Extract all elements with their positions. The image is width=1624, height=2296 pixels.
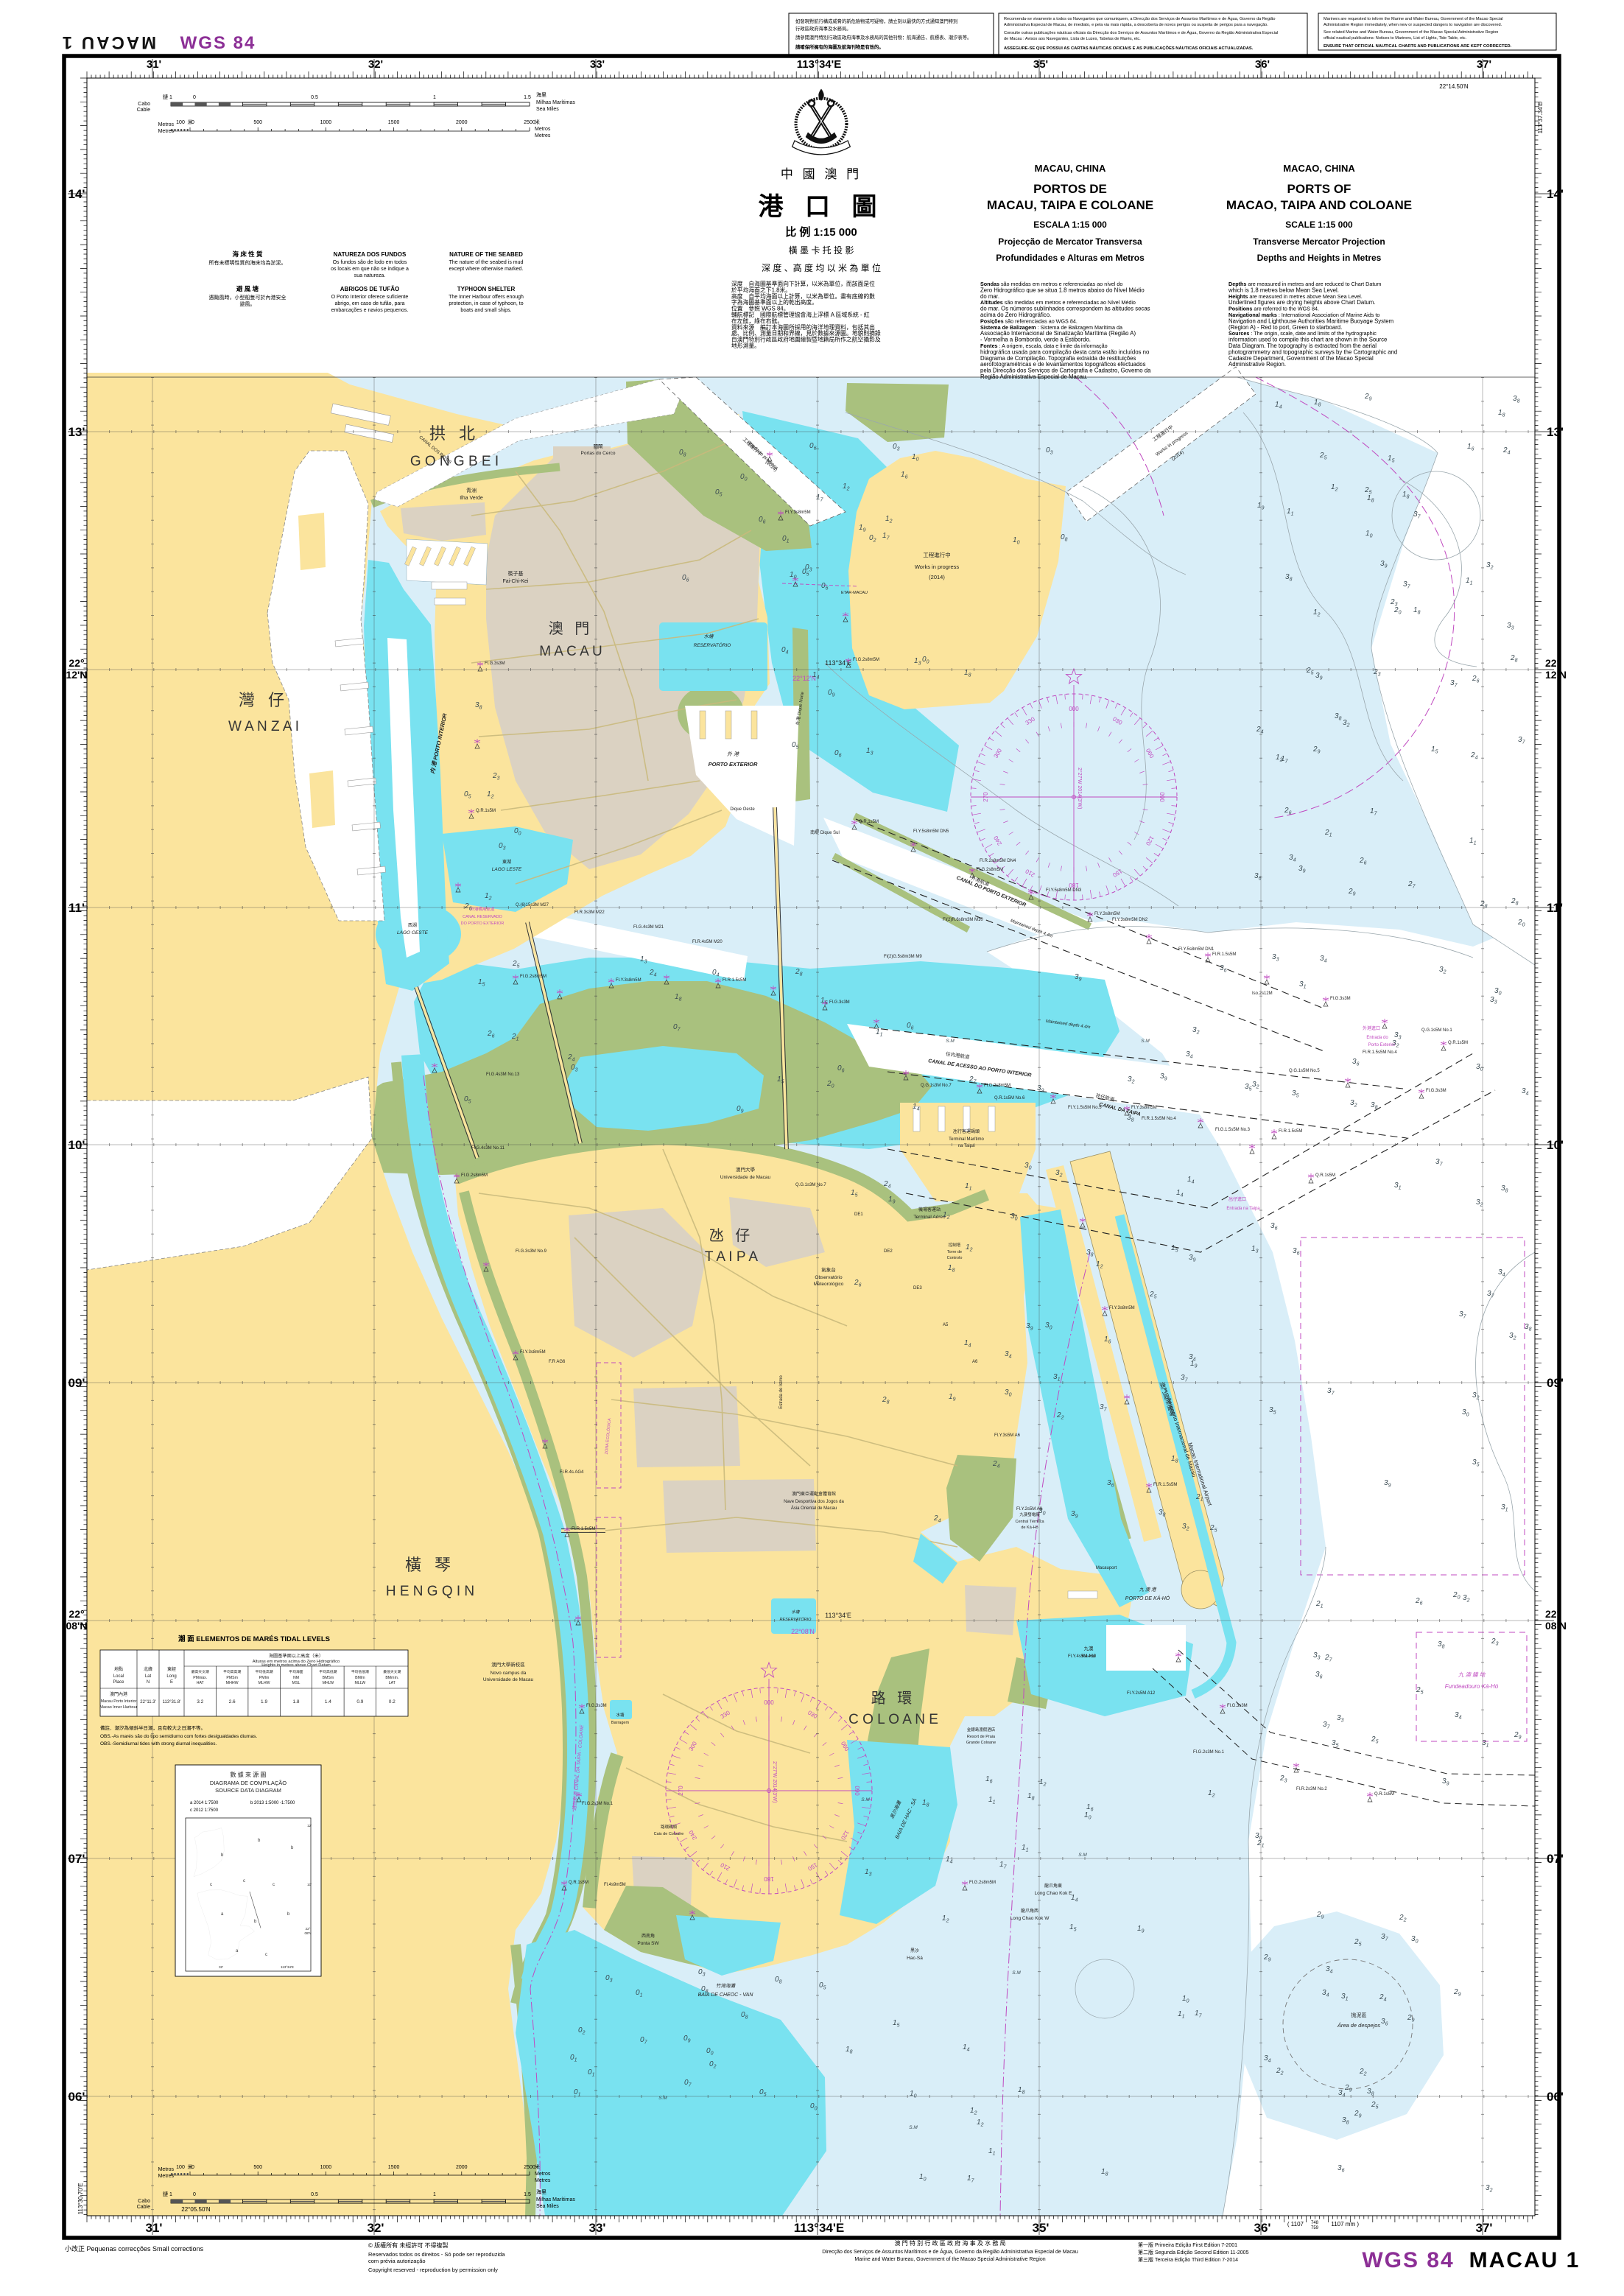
- svg-text:拱 北: 拱 北: [429, 424, 479, 443]
- svg-text:第二版 Segunda Edição Second: 第二版 Segunda Edição Second Edition 11-200…: [1138, 2249, 1249, 2255]
- svg-text:Fl.G.3s3M: Fl.G.3s3M: [829, 1000, 850, 1005]
- svg-text:遇颱風時，小型船隻可於內港安全: 遇颱風時，小型船隻可於內港安全: [209, 294, 287, 301]
- svg-text:Q.R.1s5M: Q.R.1s5M: [476, 809, 496, 813]
- svg-text:Fl.R.4s AG4: Fl.R.4s AG4: [560, 1470, 584, 1475]
- svg-text:180: 180: [1069, 882, 1079, 888]
- svg-text:except where otherwise mark: except where otherwise marked.: [449, 267, 524, 272]
- svg-text:E: E: [170, 1680, 173, 1685]
- svg-text:Universidade de Macau: Universidade de Macau: [720, 1175, 771, 1180]
- svg-text:180: 180: [764, 1875, 774, 1882]
- svg-text:09': 09': [1547, 1376, 1564, 1390]
- svg-text:Barragem: Barragem: [611, 1721, 630, 1725]
- svg-text:MACAU, TAIPA E COLOANE: MACAU, TAIPA E COLOANE: [987, 198, 1153, 212]
- svg-text:07': 07': [68, 1852, 85, 1866]
- svg-text:DE3: DE3: [913, 1286, 922, 1291]
- svg-text:Fl.G.4s3M No.13: Fl.G.4s3M No.13: [486, 1072, 520, 1077]
- svg-text:1000: 1000: [320, 120, 332, 125]
- svg-text:Fl.G.3s3M: Fl.G.3s3M: [1330, 997, 1351, 1001]
- svg-text:113°37.34'E: 113°37.34'E: [1537, 102, 1544, 134]
- svg-text:Works in progress: Works in progress: [915, 564, 960, 570]
- svg-text:Fl.G.2s3M No.1: Fl.G.2s3M No.1: [1193, 1750, 1225, 1755]
- svg-text:c: c: [243, 1879, 245, 1884]
- svg-text:RESERVATÓRIO: RESERVATÓRIO: [694, 642, 731, 648]
- svg-text:澳 門: 澳 門: [549, 620, 594, 637]
- svg-text:1.5: 1.5: [524, 2192, 531, 2197]
- svg-text:控制塔: 控制塔: [949, 1242, 961, 1248]
- svg-text:氹行客運碼頭: 氹行客運碼頭: [953, 1128, 980, 1134]
- svg-text:N: N: [147, 1680, 150, 1685]
- svg-text:Fl.G.2s8m5M: Fl.G.2s8m5M: [977, 868, 1003, 872]
- svg-text:(2014): (2014): [929, 574, 945, 580]
- svg-text:Porto Exterior: Porto Exterior: [1368, 1043, 1396, 1047]
- svg-text:HAT: HAT: [197, 1681, 205, 1685]
- svg-text:2000: 2000: [456, 120, 468, 125]
- svg-text:平均低低潮: 平均低低潮: [351, 1669, 369, 1674]
- svg-text:36': 36': [1254, 2221, 1271, 2235]
- svg-text:22°05.50'N: 22°05.50'N: [181, 2206, 211, 2213]
- svg-text:OBS.-Semidiurnal tides with st: OBS.-Semidiurnal tides with strong diurn…: [100, 1741, 217, 1746]
- svg-text:Metres: Metres: [535, 133, 551, 138]
- svg-text:35': 35': [1033, 2221, 1050, 2235]
- svg-text:MACAO, TAIPA AND COLOANE: MACAO, TAIPA AND COLOANE: [1226, 198, 1412, 212]
- svg-text:C O L O A N E: C O L O A N E: [848, 1712, 938, 1727]
- svg-text:500: 500: [253, 2165, 262, 2170]
- svg-text:北緯: 北緯: [144, 1666, 152, 1672]
- svg-text:Q.R.1s5M: Q.R.1s5M: [1374, 1792, 1394, 1797]
- svg-text:路 環: 路 環: [871, 1690, 916, 1707]
- svg-text:2.6: 2.6: [229, 1699, 236, 1705]
- svg-text:LAGO OESTE: LAGO OESTE: [397, 930, 429, 935]
- svg-text:Macauport: Macauport: [1096, 1566, 1117, 1570]
- svg-text:1.9: 1.9: [261, 1699, 267, 1705]
- svg-text:113°34'E: 113°34'E: [825, 1612, 851, 1619]
- svg-text:路環碼頭: 路環碼頭: [661, 1824, 678, 1830]
- svg-text:Fl.G.4s3M M21: Fl.G.4s3M M21: [633, 925, 664, 930]
- svg-text:最低天文潮: 最低天文潮: [383, 1669, 401, 1674]
- svg-text:LAGO LESTE: LAGO LESTE: [492, 867, 522, 872]
- svg-text:Q.R.1s5M: Q.R.1s5M: [569, 1881, 588, 1885]
- svg-text:海 床 性 質: 海 床 性 質: [232, 250, 263, 258]
- svg-text:32': 32': [368, 2221, 384, 2235]
- svg-text:海里: 海里: [536, 91, 546, 98]
- svg-text:比 例 1:15 000: 比 例 1:15 000: [785, 225, 857, 239]
- svg-text:Terminal Aéreo: Terminal Aéreo: [913, 1215, 946, 1220]
- svg-text:36': 36': [1255, 58, 1270, 71]
- svg-text:外港備用航道: 外港備用航道: [470, 906, 495, 912]
- svg-text:Torre de: Torre de: [947, 1250, 962, 1254]
- svg-text:000: 000: [1069, 706, 1079, 712]
- svg-text:DIAGRAMA DE COMPILAÇÃO: DIAGRAMA DE COMPILAÇÃO: [210, 1780, 287, 1786]
- svg-text:Fl.Y.5s8m5M DN5: Fl.Y.5s8m5M DN5: [913, 829, 949, 834]
- svg-text:270: 270: [678, 1786, 684, 1796]
- svg-text:Fl.Y.5s8m5M DN3: Fl.Y.5s8m5M DN3: [1046, 888, 1082, 893]
- svg-text:14': 14': [68, 187, 85, 201]
- svg-text:PORTO EXTERIOR: PORTO EXTERIOR: [709, 761, 758, 768]
- svg-text:Q.G.1s5M No.5: Q.G.1s5M No.5: [1289, 1069, 1320, 1073]
- svg-text:S.M: S.M: [1012, 1970, 1021, 1976]
- svg-text:Fl.R.1.5s5M: Fl.R.1.5s5M: [723, 978, 746, 983]
- svg-text:機場客運站: 機場客運站: [918, 1207, 941, 1212]
- svg-text:Fl.G.3s3M: Fl.G.3s3M: [485, 661, 505, 666]
- svg-text:BMSm: BMSm: [323, 1676, 334, 1680]
- svg-text:12': 12': [307, 1824, 312, 1828]
- svg-text:Long Chao Kok E: Long Chao Kok E: [1035, 1891, 1073, 1896]
- svg-text:九 澳 錨 地: 九 澳 錨 地: [1458, 1671, 1486, 1678]
- svg-text:地點: 地點: [114, 1666, 123, 1672]
- svg-text:黑沙: 黑沙: [910, 1948, 919, 1953]
- svg-text:Fl.R.1.5s5M: Fl.R.1.5s5M: [572, 1527, 595, 1531]
- svg-text:Portas do Cerco: Portas do Cerco: [581, 451, 616, 456]
- svg-text:1: 1: [169, 2192, 172, 2197]
- svg-text:PORTS OF: PORTS OF: [1287, 182, 1351, 196]
- svg-text:MACAU 1: MACAU 1: [60, 32, 156, 52]
- svg-text:Terminal Marítimo: Terminal Marítimo: [949, 1137, 984, 1142]
- svg-text:MLHW: MLHW: [259, 1681, 270, 1685]
- svg-text:10': 10': [307, 1883, 312, 1886]
- svg-text:Macau Porto Interior: Macau Porto Interior: [101, 1699, 137, 1704]
- svg-text:S.M: S.M: [946, 1039, 955, 1044]
- svg-text:第一版 Primeira Edição First: 第一版 Primeira Edição First Edition 7-2001: [1138, 2241, 1237, 2248]
- svg-text:1000: 1000: [320, 2165, 332, 2170]
- svg-text:boats and small ships.: boats and small ships.: [460, 308, 511, 313]
- svg-text:龍爪角東: 龍爪角東: [1044, 1883, 1062, 1889]
- svg-text:Depths and Heights in Metres: Depths and Heights in Metres: [1257, 253, 1382, 263]
- svg-text:W A N Z A I: W A N Z A I: [228, 719, 299, 734]
- svg-text:竹灣海灘: 竹灣海灘: [716, 1983, 737, 1989]
- svg-text:Profundidades e Alturas em Met: Profundidades e Alturas em Metros: [996, 253, 1145, 263]
- svg-text:embarcações e navios pequenos.: embarcações e navios pequenos.: [331, 308, 409, 313]
- svg-text:See related Marine and Water B: See related Marine and Water Bureau, Gov…: [1324, 30, 1498, 35]
- svg-text:Controlo: Controlo: [947, 1256, 963, 1260]
- svg-text:1: 1: [433, 95, 436, 100]
- svg-text:青洲: 青洲: [466, 487, 477, 494]
- svg-text:MACAU, CHINA: MACAU, CHINA: [1035, 163, 1106, 174]
- svg-text:S.M: S.M: [658, 2096, 667, 2101]
- svg-text:31': 31': [146, 2221, 163, 2235]
- svg-text:000: 000: [764, 1699, 774, 1706]
- svg-text:113°34'E: 113°34'E: [281, 1965, 294, 1969]
- svg-text:如發現對航行構成威脅的新危險物或可疑物，請立刻以最快的方式通: 如發現對航行構成威脅的新危險物或可疑物，請立刻以最快的方式通知澳門特別: [795, 18, 957, 24]
- svg-text:F.R AG6: F.R AG6: [549, 1360, 566, 1364]
- svg-text:Os fundos são de lodo em: Os fundos são de lodo em todos: [333, 260, 407, 265]
- svg-text:1.4: 1.4: [325, 1699, 331, 1705]
- svg-text:Sea Miles: Sea Miles: [536, 107, 559, 112]
- svg-text:official nautical publications: official nautical publications: Notices …: [1324, 36, 1467, 41]
- svg-text:2500: 2500: [524, 120, 535, 125]
- svg-text:37': 37': [1476, 2221, 1493, 2235]
- svg-text:MLLW: MLLW: [355, 1681, 366, 1685]
- svg-text:鏈: 鏈: [163, 2191, 168, 2197]
- svg-text:Fl.R.3s3M M22: Fl.R.3s3M M22: [574, 910, 605, 915]
- svg-text:請參閱澳門特別行政區政府海事及水務局的其他刊物：航海通告、航: 請參閱澳門特別行政區政府海事及水務局的其他刊物：航海通告、航標表、潮汐表等。: [795, 34, 971, 41]
- svg-text:深 度 、高 度 均 以 米 為 單 位: 深 度 、高 度 均 以 米 為 單 位: [762, 262, 881, 273]
- svg-text:澳門內港: 澳門內港: [110, 1691, 127, 1697]
- svg-text:九 澳 港: 九 澳 港: [1139, 1587, 1157, 1593]
- svg-text:CANAL RESERVADO: CANAL RESERVADO: [463, 915, 502, 919]
- svg-text:西湖: 西湖: [408, 922, 417, 928]
- svg-text:東經: 東經: [167, 1666, 176, 1672]
- svg-text:ASSEGURE-SE QUE POSSUI AS CART: ASSEGURE-SE QUE POSSUI AS CARTAS NÁUTICA…: [1004, 46, 1254, 51]
- svg-text:澳 門 特 別 行 政 區 政 府 海 事 及 水 務 局: 澳 門 特 別 行 政 區 政 府 海 事 及 水 務 局: [894, 2239, 1005, 2247]
- svg-text:Fl.R.1.5s5M: Fl.R.1.5s5M: [1212, 952, 1236, 957]
- svg-text:759: 759: [1311, 2226, 1319, 2230]
- svg-text:ABRIGOS DE TUFÃO: ABRIGOS DE TUFÃO: [340, 286, 399, 292]
- svg-text:Metres: Metres: [158, 129, 175, 134]
- svg-text:Central Térmica: Central Térmica: [1015, 1520, 1044, 1524]
- svg-text:Nave Desportiva dos Jogos da: Nave Desportiva dos Jogos da: [784, 1500, 844, 1504]
- svg-text:氣象台: 氣象台: [821, 1266, 836, 1273]
- svg-text:九澳發電廠: 九澳發電廠: [1019, 1512, 1040, 1517]
- svg-text:H E N G Q I N: H E N G Q I N: [386, 1584, 474, 1599]
- svg-text:Fl.Y.3s8m5M: Fl.Y.3s8m5M: [785, 510, 811, 515]
- svg-text:PORTO DE KÁ-HÓ: PORTO DE KÁ-HÓ: [1125, 1595, 1170, 1601]
- svg-text:0: 0: [191, 2165, 194, 2170]
- svg-text:c: c: [210, 1883, 212, 1887]
- svg-text:平均低高潮: 平均低高潮: [256, 1669, 273, 1674]
- svg-text:Metres: Metres: [535, 2178, 551, 2183]
- svg-text:Fl.G.3s3M: Fl.G.3s3M: [1227, 1704, 1248, 1708]
- svg-text:Fl.G.2s8m5M: Fl.G.2s8m5M: [984, 1084, 1010, 1088]
- svg-text:32': 32': [368, 58, 383, 71]
- svg-text:外 港: 外 港: [727, 751, 739, 757]
- svg-text:平均高低潮: 平均高低潮: [319, 1669, 337, 1674]
- svg-text:protection, in case of typ: protection, in case of typhoon, to: [449, 301, 523, 306]
- svg-text:避風。: 避風。: [240, 301, 256, 307]
- svg-text:Q.G.1s5M No.1: Q.G.1s5M No.1: [1421, 1028, 1452, 1033]
- svg-text:橫 琴: 橫 琴: [405, 1556, 455, 1574]
- svg-text:Fl.G.3s3M No.9: Fl.G.3s3M No.9: [516, 1249, 547, 1254]
- svg-text:Fl.R.1.5s5M: Fl.R.1.5s5M: [1153, 1483, 1177, 1487]
- svg-text:2°27'W 2014(3'W): 2°27'W 2014(3'W): [772, 1761, 778, 1802]
- svg-text:Fl.R.1.5s5M: Fl.R.1.5s5M: [1279, 1129, 1302, 1134]
- svg-text:Fl.4s9m5M: Fl.4s9m5M: [604, 1883, 626, 1887]
- svg-text:A6: A6: [972, 1360, 978, 1364]
- svg-text:MHHW: MHHW: [226, 1681, 239, 1685]
- svg-text:Q.R.1s5M: Q.R.1s5M: [1315, 1173, 1335, 1178]
- svg-text:The Inner Harbour offers e: The Inner Harbour offers enough: [449, 295, 524, 300]
- svg-text:Universidade de Macau: Universidade de Macau: [483, 1677, 534, 1682]
- svg-text:澳門大學新校區: 澳門大學新校區: [491, 1661, 525, 1668]
- svg-text:最高天文潮: 最高天文潮: [191, 1669, 209, 1674]
- svg-text:33': 33': [590, 58, 605, 71]
- svg-text:MACAO, CHINA: MACAO, CHINA: [1283, 163, 1355, 174]
- svg-text:橫 墨 卡 托 投 影: 橫 墨 卡 托 投 影: [789, 245, 854, 256]
- svg-text:08'N: 08'N: [66, 1620, 87, 1632]
- svg-text:Fl.G.2s8m5M: Fl.G.2s8m5M: [969, 1881, 996, 1885]
- svg-text:NM: NM: [293, 1676, 299, 1680]
- svg-text:WGS 84: WGS 84: [180, 33, 256, 53]
- svg-text:鏈: 鏈: [163, 94, 168, 100]
- svg-text:DE1: DE1: [854, 1212, 863, 1217]
- svg-text:Q.(6)15s3M M27: Q.(6)15s3M M27: [516, 903, 549, 907]
- svg-text:13': 13': [68, 425, 85, 439]
- svg-text:S.M: S.M: [861, 1797, 870, 1802]
- svg-text:Entrada na Taipa: Entrada na Taipa: [1226, 1207, 1260, 1211]
- svg-text:Projecção de Mercator Transver: Projecção de Mercator Transversa: [998, 236, 1142, 247]
- svg-text:A5: A5: [943, 1323, 949, 1327]
- svg-text:Ilha Verde: Ilha Verde: [460, 496, 483, 501]
- svg-text:22°: 22°: [68, 657, 84, 669]
- svg-text:sua natureza.: sua natureza.: [354, 273, 385, 278]
- svg-text:所有未標明性質的海床均為淤泥。: 所有未標明性質的海床均為淤泥。: [209, 259, 287, 266]
- svg-text:06': 06': [1547, 2090, 1564, 2104]
- svg-text:Transverse Mercator Projection: Transverse Mercator Projection: [1253, 236, 1385, 247]
- svg-text:S.M: S.M: [1078, 1853, 1087, 1858]
- svg-text:Metros: Metros: [158, 2167, 175, 2172]
- svg-text:小改正 Pequenas correcções Smal: 小改正 Pequenas correcções Small correction…: [65, 2244, 204, 2253]
- svg-text:de Macau : Avisos aos Navegant: de Macau : Avisos aos Navegantes, Lista …: [1004, 37, 1141, 41]
- svg-text:Fl.R.2s8m5M DN4: Fl.R.2s8m5M DN4: [980, 859, 1016, 863]
- svg-text:Q.G.1s3M No.7: Q.G.1s3M No.7: [921, 1084, 952, 1088]
- svg-text:T A I P A: T A I P A: [705, 1249, 759, 1265]
- svg-text:os locais em que não se: os locais em que não se indique a: [331, 267, 409, 272]
- svg-text:請確保所擁有的海圖及航海刊物是有效的。: 請確保所擁有的海圖及航海刊物是有效的。: [795, 43, 884, 50]
- svg-text:Macao Inner Harbour: Macao Inner Harbour: [100, 1705, 138, 1710]
- svg-text:DE2: DE2: [884, 1249, 893, 1254]
- svg-text:PMIm: PMIm: [259, 1676, 270, 1680]
- svg-text:Long: Long: [166, 1674, 176, 1679]
- svg-text:港 口 圖: 港 口 圖: [759, 193, 885, 221]
- svg-text:Novo campus da: Novo campus da: [491, 1671, 527, 1676]
- svg-text:LAT: LAT: [389, 1681, 396, 1685]
- svg-text:Fl.R.1.5s5M No.4: Fl.R.1.5s5M No.4: [1142, 1117, 1176, 1121]
- svg-text:Fl.G.2s3M No.1: Fl.G.2s3M No.1: [582, 1802, 614, 1806]
- svg-text:Fl.Y.2s5M A8: Fl.Y.2s5M A8: [1016, 1507, 1043, 1512]
- svg-text:Milhas Marítimas: Milhas Marítimas: [536, 100, 575, 105]
- svg-text:潮 面 ELEMENTOS DE MARÉS T: 潮 面 ELEMENTOS DE MARÉS TIDAL LEVELS: [178, 1635, 330, 1643]
- svg-text:0.5: 0.5: [311, 2192, 318, 2197]
- svg-text:Ponta SW: Ponta SW: [637, 1941, 659, 1946]
- svg-text:Ásia Oriental de Macau: Ásia Oriental de Macau: [791, 1506, 837, 1511]
- svg-text:Q.G.1s3M No.7: Q.G.1s3M No.7: [795, 1183, 826, 1187]
- svg-text:0.9: 0.9: [356, 1699, 363, 1705]
- svg-text:Estrada do Istmo: Estrada do Istmo: [779, 1375, 784, 1409]
- svg-text:RESERVATÓRIO: RESERVATÓRIO: [780, 1617, 812, 1622]
- svg-text:b 2013 1:5000 -1:7500: b 2013 1:5000 -1:7500: [250, 1801, 295, 1805]
- svg-text:Fl.G.1.5s5M No.3: Fl.G.1.5s5M No.3: [1215, 1128, 1251, 1132]
- svg-text:Meteorológico: Meteorológico: [814, 1282, 844, 1287]
- svg-text:O Porto Interior oferece s: O Porto Interior oferece suficiente: [331, 295, 409, 300]
- svg-text:Fl.Y.3s8m5M: Fl.Y.3s8m5M: [616, 978, 641, 983]
- svg-text:748: 748: [1311, 2221, 1319, 2225]
- svg-text:Consulte outras publicações ná: Consulte outras publicações náuticas ofi…: [1004, 30, 1278, 35]
- svg-text:ENSURE THAT OFFICIAL NAUTICAL: ENSURE THAT OFFICIAL NAUTICAL CHARTS AND…: [1324, 44, 1512, 49]
- svg-text:地形測量。: 地形測量。: [731, 342, 760, 349]
- svg-text:32': 32': [219, 1965, 223, 1969]
- svg-text:Fundeadouro Ká-Hó: Fundeadouro Ká-Hó: [1445, 1683, 1499, 1690]
- svg-text:SOURCE DATA DIAGRAM: SOURCE DATA DIAGRAM: [215, 1787, 281, 1794]
- svg-text:Marine and Water Bureau, Gover: Marine and Water Bureau, Government of t…: [854, 2257, 1045, 2262]
- svg-text:澳門大學: 澳門大學: [736, 1166, 756, 1173]
- svg-text:13': 13': [1547, 425, 1564, 439]
- svg-text:BMIm: BMIm: [355, 1676, 365, 1680]
- svg-text:c: c: [265, 1953, 267, 1957]
- svg-text:1.8: 1.8: [292, 1699, 299, 1705]
- svg-text:com prévia autorização: com prévia autorização: [368, 2258, 426, 2264]
- svg-text:Fai-Chi-Kei: Fai-Chi-Kei: [502, 579, 528, 584]
- svg-text:22°: 22°: [1545, 657, 1561, 669]
- svg-text:09': 09': [68, 1376, 85, 1390]
- svg-text:Long Chao Kok W: Long Chao Kok W: [1010, 1916, 1050, 1921]
- svg-text:Fl.R.4s5M M20: Fl.R.4s5M M20: [692, 940, 723, 944]
- svg-text:113°30.70'E: 113°30.70'E: [77, 2183, 84, 2215]
- svg-text:Observatório: Observatório: [815, 1275, 843, 1280]
- svg-text:Entrada do: Entrada do: [1366, 1036, 1388, 1040]
- svg-text:22°11.3': 22°11.3': [140, 1700, 155, 1705]
- svg-text:Dique Oeste: Dique Oeste: [730, 807, 755, 812]
- svg-text:33': 33': [589, 2221, 606, 2235]
- svg-text:113°34'E: 113°34'E: [794, 2221, 845, 2235]
- svg-text:氹仔進口: 氹仔進口: [1228, 1196, 1246, 1202]
- svg-text:九澳: 九澳: [1084, 1645, 1094, 1651]
- svg-text:Metros: Metros: [158, 122, 175, 127]
- svg-text:35': 35': [1033, 58, 1048, 71]
- svg-text:Fl.G.2s8m5M: Fl.G.2s8m5M: [853, 658, 879, 662]
- svg-text:關閘: 關閘: [594, 443, 603, 449]
- svg-text:NATUREZA DOS FUNDOS: NATUREZA DOS FUNDOS: [334, 251, 407, 258]
- svg-text:Fl.G.2s8m5M: Fl.G.2s8m5M: [520, 975, 546, 979]
- svg-text:2°27'W 2014(3'W): 2°27'W 2014(3'W): [1077, 768, 1083, 809]
- svg-text:數 據 來 源 圖: 數 據 來 源 圖: [231, 1771, 267, 1778]
- svg-text:DO PORTO EXTERIOR: DO PORTO EXTERIOR: [461, 921, 505, 926]
- svg-text:金銀島渡假酒店: 金銀島渡假酒店: [967, 1727, 996, 1732]
- svg-text:米: 米: [535, 2163, 540, 2170]
- svg-text:Fl.Y.3s5M A6: Fl.Y.3s5M A6: [994, 1433, 1021, 1438]
- svg-text:避 風 塘: 避 風 塘: [236, 285, 259, 292]
- svg-text:Cabo: Cabo: [138, 2199, 150, 2204]
- svg-text:1500: 1500: [388, 120, 400, 125]
- svg-text:Place: Place: [113, 1680, 124, 1685]
- svg-text:500: 500: [253, 120, 262, 125]
- svg-text:22°14.50'N: 22°14.50'N: [1439, 83, 1469, 90]
- svg-text:© 版權所有 未經許可 不得複製: © 版權所有 未經許可 不得複製: [368, 2241, 449, 2249]
- svg-text:abrigo, em caso de tufão,: abrigo, em caso de tufão, para: [335, 301, 405, 306]
- svg-text:Fl.Y.3s8m5M DN2: Fl.Y.3s8m5M DN2: [1112, 918, 1148, 922]
- svg-text:113°31.8': 113°31.8': [163, 1700, 181, 1705]
- svg-text:Fl.G.2s8m5M: Fl.G.2s8m5M: [461, 1173, 488, 1178]
- svg-text:c 2012 1:7500: c 2012 1:7500: [190, 1808, 219, 1813]
- svg-text:Cabo: Cabo: [138, 102, 150, 107]
- svg-text:Hac-Sá: Hac-Sá: [907, 1956, 923, 1961]
- svg-text:Resort de Praia: Resort de Praia: [967, 1735, 996, 1739]
- svg-text:Heights in metres above Chart: Heights in metres above Chart Datum: [261, 1663, 331, 1668]
- svg-text:抛泥區: 抛泥區: [1351, 2012, 1367, 2018]
- svg-text:水塘: 水塘: [616, 1712, 625, 1718]
- svg-text:0.2: 0.2: [389, 1699, 396, 1705]
- svg-text:東湖: 東湖: [502, 859, 511, 865]
- svg-text:Fl.Y.3s8m5M: Fl.Y.3s8m5M: [1131, 1106, 1157, 1110]
- svg-text:Grande Coloane: Grande Coloane: [966, 1741, 996, 1745]
- svg-text:Fl.R.2s3M No.2: Fl.R.2s3M No.2: [1296, 1787, 1327, 1791]
- svg-text:de Ká-Hó: de Ká-Hó: [1021, 1526, 1038, 1530]
- svg-text:G O N G B E I: G O N G B E I: [410, 454, 499, 469]
- svg-text:Metros: Metros: [535, 2172, 551, 2177]
- svg-text:0: 0: [193, 95, 196, 100]
- svg-text:Fl.G.3s3M: Fl.G.3s3M: [586, 1704, 607, 1708]
- svg-text:備註．潮汐為傾斜半日潮，且有較大之日潮不等。: 備註．潮汐為傾斜半日潮，且有較大之日潮不等。: [100, 1724, 205, 1731]
- svg-text:MACAU 1: MACAU 1: [1469, 2248, 1581, 2272]
- svg-text:水塘: 水塘: [704, 633, 715, 639]
- svg-text:Copyright reserved - reproduct: Copyright reserved - reproduction by per…: [368, 2267, 498, 2273]
- svg-text:Local: Local: [113, 1674, 124, 1679]
- svg-text:氹 仔: 氹 仔: [709, 1227, 754, 1244]
- svg-text:0: 0: [193, 2192, 196, 2197]
- svg-text:Fl.Y.2s5M A12: Fl.Y.2s5M A12: [1127, 1691, 1156, 1696]
- svg-text:22°: 22°: [306, 1927, 311, 1931]
- svg-text:TYPHOON SHELTER: TYPHOON SHELTER: [457, 286, 516, 292]
- svg-text:090: 090: [854, 1786, 860, 1796]
- svg-text:Fl.Y.3s8m5M: Fl.Y.3s8m5M: [1094, 912, 1120, 916]
